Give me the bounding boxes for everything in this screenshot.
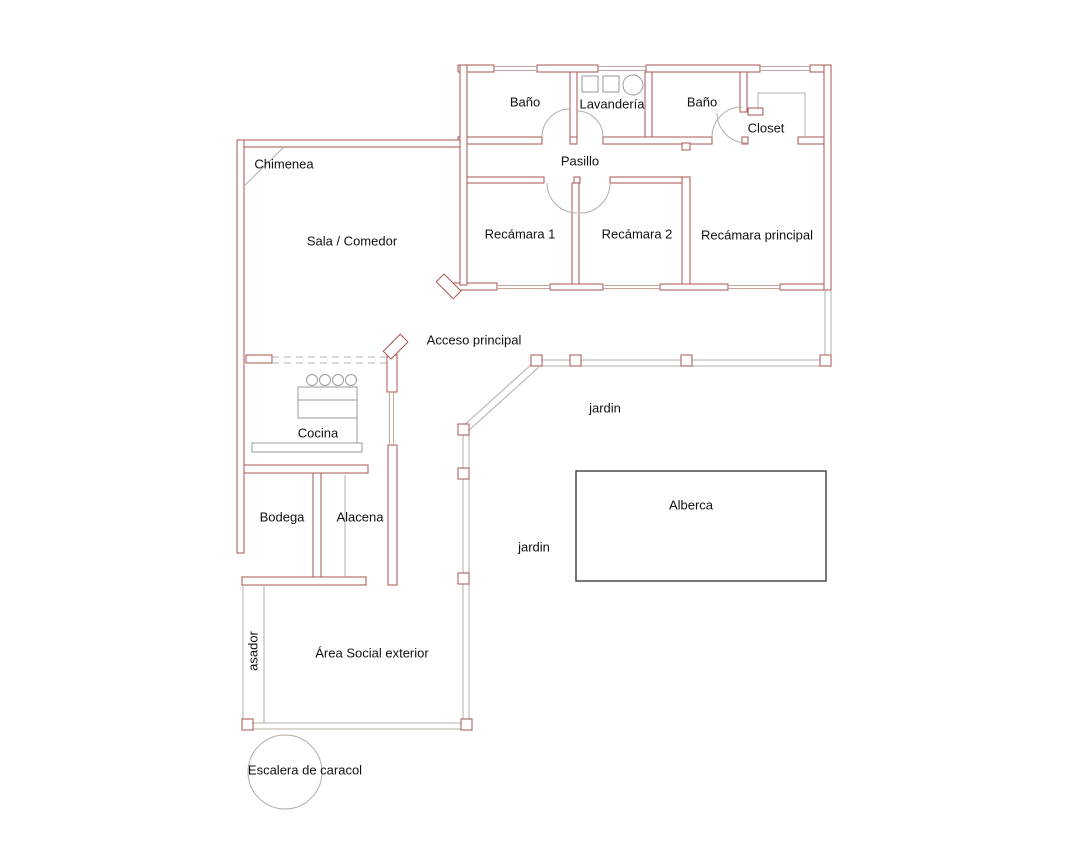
fence-post bbox=[461, 719, 472, 730]
wall-segment bbox=[246, 355, 272, 363]
fence-post bbox=[531, 355, 542, 366]
wall-segment bbox=[460, 65, 467, 285]
stove-burner-icon bbox=[333, 375, 344, 386]
stove-icon bbox=[298, 387, 357, 418]
room-label-acceso: Acceso principal bbox=[427, 333, 522, 348]
wall-segment bbox=[574, 177, 580, 183]
wall-segment bbox=[780, 284, 831, 290]
room-label-bano2: Baño bbox=[687, 95, 717, 110]
wall-segment bbox=[610, 177, 690, 183]
room-label-recamara2: Recámara 2 bbox=[602, 227, 673, 242]
room-label-alacena: Alacena bbox=[337, 510, 385, 525]
wall-segment bbox=[682, 143, 690, 150]
room-label-asador: asador bbox=[246, 630, 261, 670]
wall-segment bbox=[313, 473, 321, 577]
room-label-recamara-principal: Recámara principal bbox=[701, 228, 813, 243]
room-label-sala: Sala / Comedor bbox=[307, 234, 398, 249]
wall-segment bbox=[237, 140, 244, 553]
wall-segment bbox=[603, 137, 712, 144]
door-arc bbox=[712, 107, 742, 137]
room-label-area-social: Área Social exterior bbox=[315, 646, 429, 661]
wall-segment bbox=[387, 355, 397, 392]
wall-segment bbox=[682, 177, 690, 284]
labels-layer: Chimenea Baño Lavandería Baño Closet Pas… bbox=[246, 95, 814, 778]
fence-line bbox=[467, 367, 539, 432]
room-label-jardin-top: jardin bbox=[588, 401, 621, 416]
fence-post bbox=[458, 424, 469, 435]
wall-segment bbox=[824, 65, 831, 290]
room-label-cocina: Cocina bbox=[298, 426, 339, 441]
fence-post bbox=[242, 719, 253, 730]
kitchen-counter bbox=[252, 443, 362, 452]
door-arc bbox=[542, 109, 570, 137]
wall-segment bbox=[458, 137, 542, 144]
wall-segment bbox=[646, 65, 760, 72]
stove-burner-icon bbox=[346, 375, 357, 386]
wall-segment bbox=[388, 445, 397, 585]
wall-segment bbox=[242, 577, 366, 585]
wall-segment bbox=[748, 108, 763, 115]
wall-segment bbox=[660, 284, 728, 290]
wall-segment bbox=[570, 72, 577, 137]
fixtures-layer bbox=[252, 75, 643, 452]
wall-segment bbox=[740, 72, 747, 112]
room-label-closet: Closet bbox=[748, 121, 785, 136]
wall-segment bbox=[460, 177, 544, 183]
room-label-jardin-left: jardin bbox=[517, 540, 550, 555]
stove-burner-icon bbox=[320, 375, 331, 386]
fence-line bbox=[462, 362, 534, 427]
room-label-alberca: Alberca bbox=[669, 498, 714, 513]
floor-plan-drawing: Chimenea Baño Lavandería Baño Closet Pas… bbox=[0, 0, 1080, 864]
stove-burner-icon bbox=[307, 375, 318, 386]
fence-post bbox=[458, 468, 469, 479]
floor-plan-canvas: Chimenea Baño Lavandería Baño Closet Pas… bbox=[0, 0, 1080, 864]
door-arc bbox=[577, 111, 603, 137]
wall-segment bbox=[645, 72, 652, 137]
fence-post bbox=[820, 355, 831, 366]
room-label-bano1: Baño bbox=[510, 95, 540, 110]
wall-segment bbox=[537, 65, 598, 72]
fence-post bbox=[681, 355, 692, 366]
wall-segment bbox=[550, 284, 603, 290]
laundry-sink-icon bbox=[603, 76, 619, 92]
laundry-sink-icon bbox=[582, 76, 598, 92]
room-label-bodega: Bodega bbox=[260, 510, 306, 525]
fence-post bbox=[570, 355, 581, 366]
room-label-recamara1: Recámara 1 bbox=[485, 227, 556, 242]
wall-segment bbox=[572, 183, 579, 284]
fence-post bbox=[458, 573, 469, 584]
pool-outline bbox=[576, 471, 826, 581]
wall-segment bbox=[570, 137, 577, 144]
washer-icon bbox=[623, 75, 643, 95]
wall-segment bbox=[243, 465, 368, 473]
room-label-lavanderia: Lavandería bbox=[579, 97, 645, 112]
room-label-chimenea: Chimenea bbox=[254, 157, 314, 172]
room-label-escalera: Escalera de caracol bbox=[248, 763, 362, 778]
door-arc bbox=[580, 183, 610, 213]
room-label-pasillo: Pasillo bbox=[561, 154, 599, 169]
wall-segment bbox=[237, 140, 463, 147]
